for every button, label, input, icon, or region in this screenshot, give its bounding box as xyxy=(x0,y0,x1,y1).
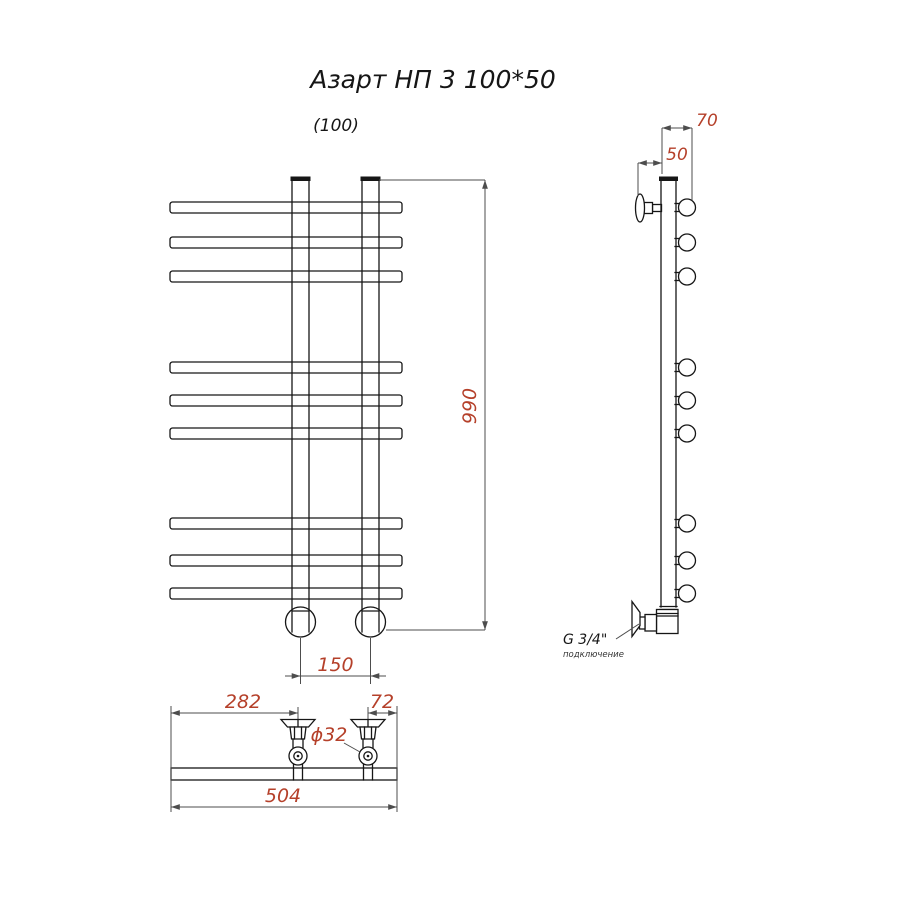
connection-fitting xyxy=(632,602,678,637)
towel-bar xyxy=(170,395,402,406)
dimension-right-offset: 72 xyxy=(368,691,397,713)
dimension-diameter: ϕ32 xyxy=(311,724,360,752)
towel-bar xyxy=(170,362,402,373)
side-view: 70 50 G 3/4" подключение xyxy=(563,111,718,660)
bar-end xyxy=(675,392,696,409)
bar-end xyxy=(675,585,696,602)
bar-end xyxy=(675,359,696,376)
dim-wall-offset-label: 50 xyxy=(666,145,688,165)
bar-end xyxy=(675,515,696,532)
riser-right xyxy=(361,177,381,633)
dim-right-offset-label: 72 xyxy=(370,691,394,713)
dim-total-width-label: 504 xyxy=(265,785,301,807)
bar-end xyxy=(675,268,696,285)
dimension-total-width: 504 xyxy=(171,785,397,807)
towel-bar xyxy=(170,555,402,566)
dim-depth-label: 70 xyxy=(696,111,718,131)
bar-end xyxy=(675,199,696,216)
dimension-wall-offset: 50 xyxy=(638,145,688,196)
bottom-view: 282 72 ϕ32 504 xyxy=(171,691,397,812)
bar-end xyxy=(675,234,696,251)
side-riser xyxy=(659,177,678,608)
connection-thread-label: G 3/4" xyxy=(563,632,607,648)
technical-drawing-page: Азарт НП 3 100*50 (100) xyxy=(0,0,900,900)
drawing-title: Азарт НП 3 100*50 xyxy=(308,65,556,94)
dimension-left-offset: 282 xyxy=(171,691,298,713)
towel-bar xyxy=(170,588,402,599)
towel-bar xyxy=(170,237,402,248)
connection-callout: G 3/4" подключение xyxy=(563,624,639,660)
towel-rail-drawing: Азарт НП 3 100*50 (100) xyxy=(0,0,900,900)
towel-bar xyxy=(170,518,402,529)
dim-left-offset-label: 282 xyxy=(225,691,261,713)
wall-bracket xyxy=(636,194,662,222)
riser-left xyxy=(291,177,311,633)
towel-bar xyxy=(170,271,402,282)
dimension-bottom-spacing: 150 xyxy=(285,638,386,684)
dim-diameter-label: ϕ32 xyxy=(311,724,348,746)
towel-bar xyxy=(170,428,402,439)
bar-end xyxy=(675,425,696,442)
bar-end xyxy=(675,552,696,569)
dim-bottom-spacing-label: 150 xyxy=(317,654,353,676)
connection-note: подключение xyxy=(563,650,624,660)
variant-note: (100) xyxy=(313,116,359,136)
towel-bar xyxy=(170,202,402,213)
front-view: 990 150 xyxy=(170,177,485,685)
dim-height-label: 990 xyxy=(459,388,481,424)
